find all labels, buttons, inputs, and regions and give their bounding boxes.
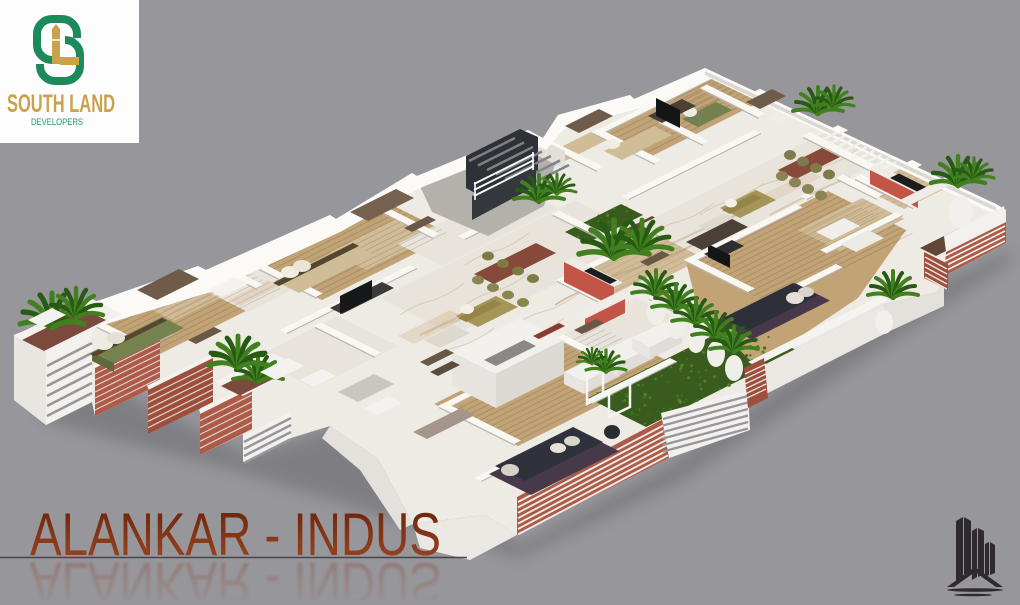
svg-text:SOUTH LAND: SOUTH LAND — [7, 90, 115, 118]
svg-text:DEVELOPERS: DEVELOPERS — [31, 117, 83, 128]
